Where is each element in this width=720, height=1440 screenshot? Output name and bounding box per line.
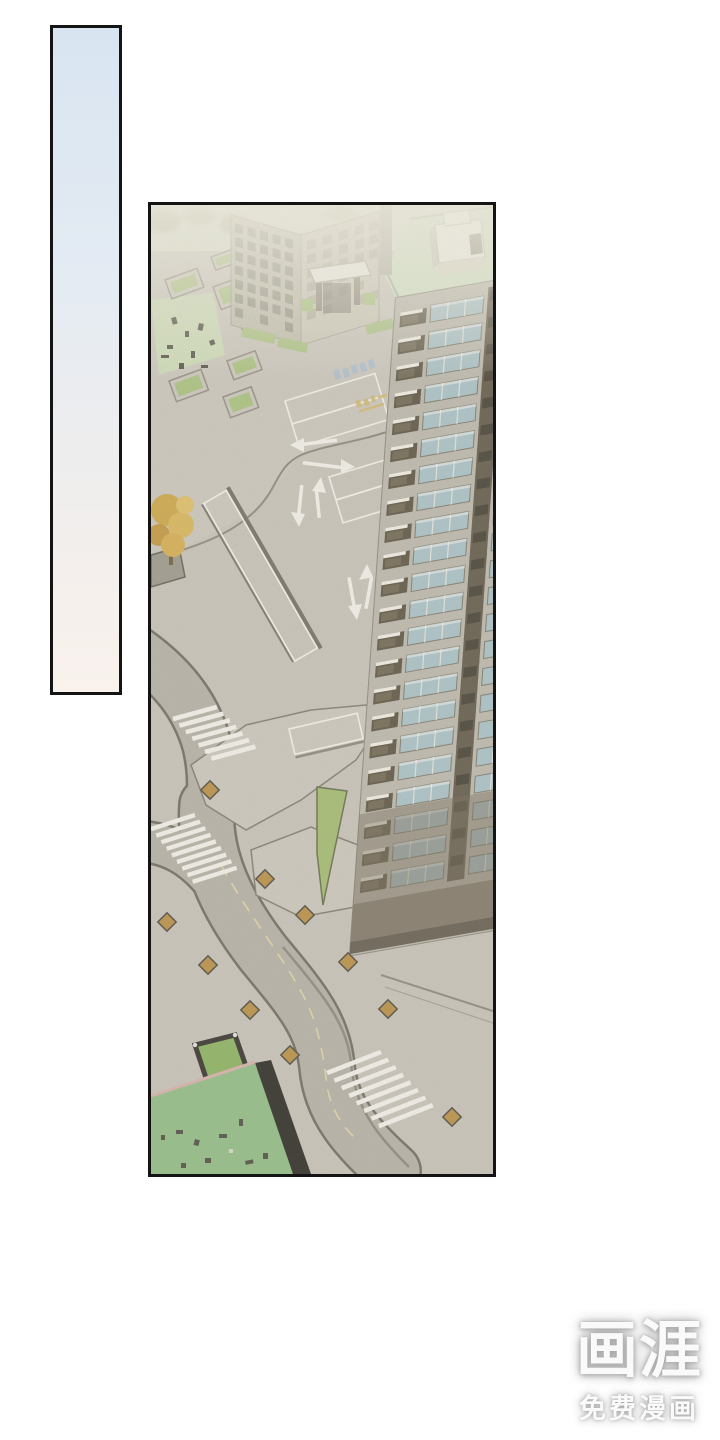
watermark-logo: 画涯 [576, 1320, 702, 1382]
city-illustration-panel [148, 202, 496, 1177]
site-watermark: 画涯 免费漫画 [576, 1320, 702, 1426]
comic-page: 画涯 免费漫画 [0, 0, 720, 1440]
city-illustration [151, 205, 493, 1174]
sky-gradient-panel [50, 25, 122, 695]
watermark-subtitle: 免费漫画 [576, 1387, 702, 1426]
grain-overlay [151, 205, 493, 1174]
